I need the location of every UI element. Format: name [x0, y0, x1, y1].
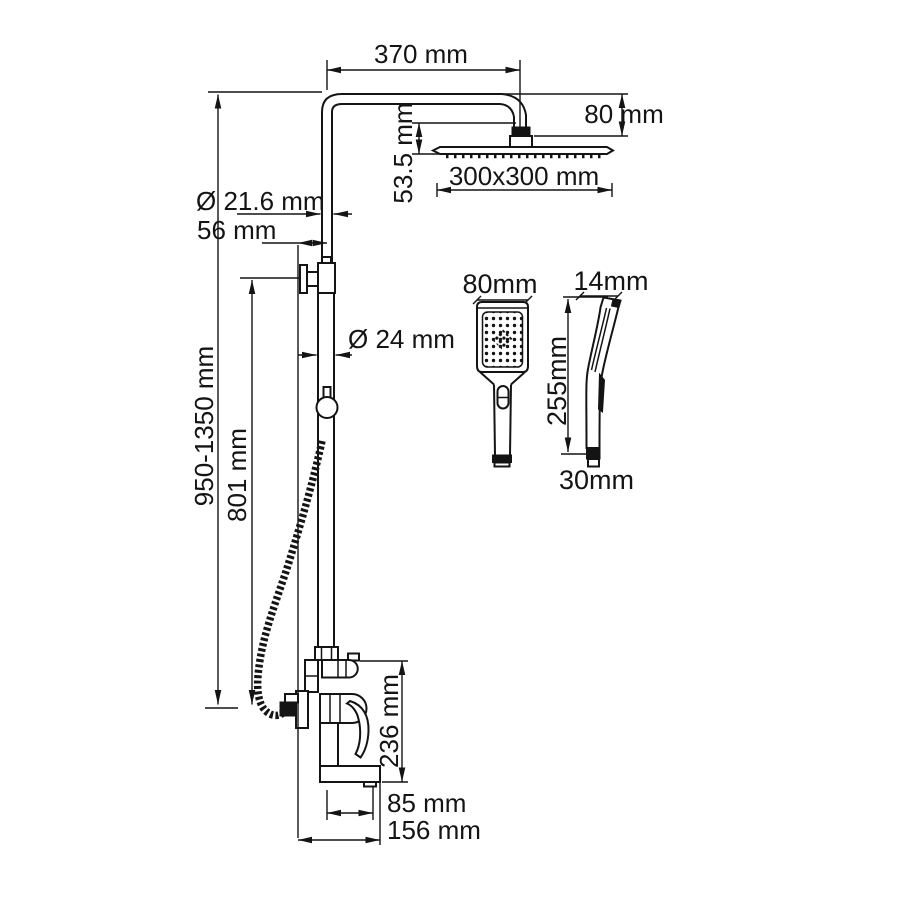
- wall-bracket-clamp: [318, 263, 335, 293]
- hand-handle-width-label: 30mm: [559, 465, 634, 495]
- hose-connector: [280, 702, 296, 716]
- hand-taper-left: [480, 372, 494, 385]
- hand-taper-right: [511, 372, 525, 385]
- slider-holder: [317, 397, 338, 418]
- head-connector-ring: [512, 127, 530, 136]
- hand-side-band: [587, 448, 601, 459]
- hand-handle-left: [494, 385, 495, 456]
- technical-drawing-page: 370 mm 80 mm 53.5 mm 300x300 mm Ø 21.6 m…: [0, 0, 900, 900]
- dim-arm-length-label: 370 mm: [374, 39, 468, 69]
- hand-handle-right: [510, 385, 511, 456]
- hand-handle-band: [493, 455, 512, 463]
- mixer-coupling-nut: [315, 647, 338, 660]
- shower-drawing-svg: 370 mm 80 mm 53.5 mm 300x300 mm Ø 21.6 m…: [0, 0, 900, 900]
- dim-head-offset-label: 53.5 mm: [388, 102, 418, 203]
- dim-head-drop-label: 80 mm: [584, 99, 663, 129]
- hand-handle-tip: [495, 463, 510, 467]
- mixer-column: [320, 723, 338, 766]
- hand-side-grip-shade: [599, 374, 605, 412]
- dim-bracket-height-label: 801 mm: [222, 428, 252, 522]
- dim-total-depth-label: 156 mm: [387, 815, 481, 845]
- dim-wall-offset-label: 56 mm: [197, 215, 276, 245]
- dim-head-size-label: 300x300 mm: [449, 161, 599, 191]
- hand-length-label: 255mm: [542, 336, 572, 426]
- hand-side-tip-shade: [612, 299, 621, 307]
- dim-column-height-label: 950-1350 mm: [189, 346, 219, 506]
- hand-depth-label: 14mm: [573, 266, 648, 296]
- wall-bracket-arm: [307, 272, 318, 286]
- dim-spout-reach-label: 85 mm: [387, 788, 466, 818]
- dim-upper-pipe-label: Ø 21.6 mm: [196, 186, 325, 216]
- overhead-shower-plate: [433, 147, 613, 154]
- spout-aerator: [364, 782, 376, 787]
- dim-mixer-height-label: 236 mm: [374, 674, 404, 768]
- hose-nipple: [285, 694, 298, 703]
- spout: [320, 766, 380, 782]
- wall-bracket-plate: [300, 265, 307, 293]
- handshower-front-view: [473, 296, 532, 467]
- hand-width-label: 80mm: [462, 269, 537, 299]
- diverter-cylinder: [322, 660, 358, 678]
- dim-lower-pipe-label: Ø 24 mm: [348, 324, 455, 354]
